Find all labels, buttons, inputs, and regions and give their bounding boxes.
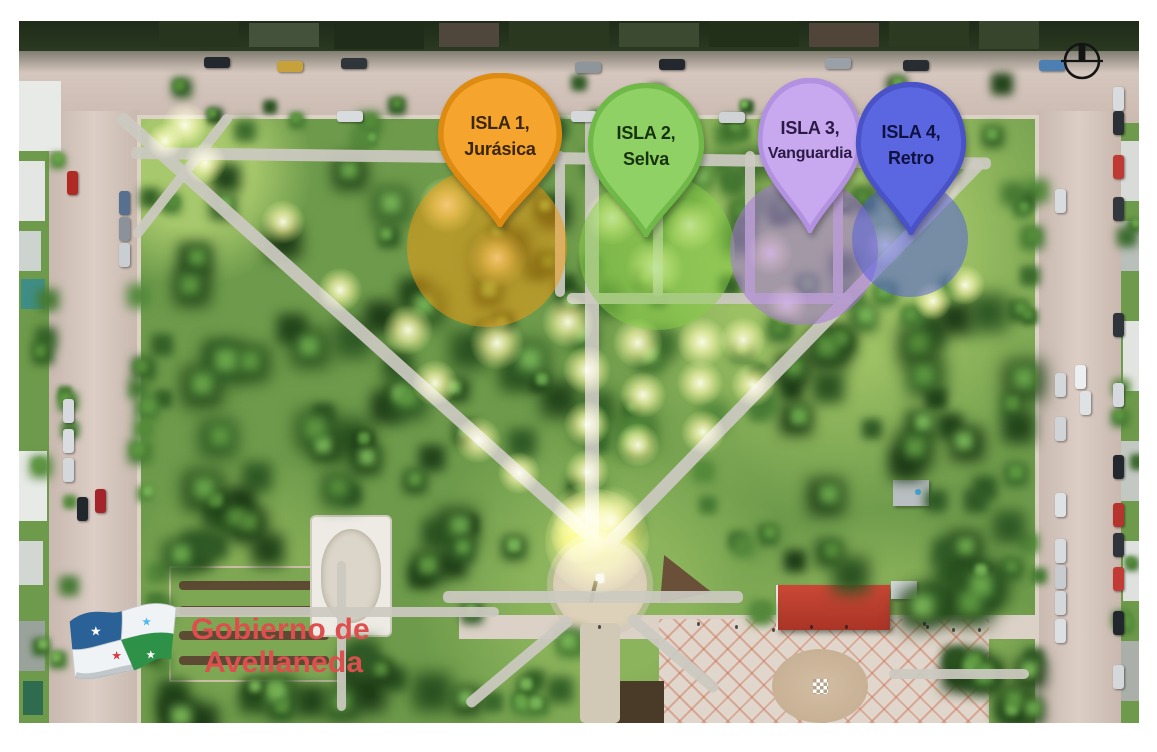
red-roof-building <box>776 585 890 630</box>
pedestrian <box>952 628 955 632</box>
car <box>719 112 745 123</box>
map-pin-isla-3[interactable]: ISLA 3,Vanguardia <box>757 78 863 233</box>
walkway-circle-horizontal <box>443 591 743 603</box>
walkway-south <box>580 623 620 723</box>
building <box>709 21 799 47</box>
logo-text: Gobierno de Avellaneda <box>191 613 370 679</box>
car <box>63 458 74 482</box>
building <box>159 21 239 47</box>
building <box>1123 541 1139 601</box>
service-building <box>893 480 929 506</box>
building <box>619 23 699 47</box>
svg-text:★: ★ <box>146 650 156 662</box>
pedestrian <box>926 625 929 629</box>
pedestrian <box>978 628 981 632</box>
building <box>889 21 969 47</box>
car <box>119 217 130 241</box>
car <box>1113 665 1124 689</box>
car <box>1055 565 1066 589</box>
car <box>1113 313 1124 337</box>
pedestrian <box>772 628 775 632</box>
poster-canvas: ISLA 1,Jurásica ISLA 2,Selva ISLA 3,Vang… <box>0 0 1157 752</box>
building <box>19 231 41 271</box>
building <box>19 541 43 585</box>
car <box>1113 111 1124 135</box>
car <box>341 58 367 69</box>
car <box>1080 391 1091 415</box>
building <box>19 621 45 671</box>
car <box>1055 539 1066 563</box>
car <box>1113 567 1124 591</box>
car <box>1113 197 1124 221</box>
building <box>21 279 45 309</box>
pin-label: ISLA 2,Selva <box>587 120 705 172</box>
car <box>67 171 78 195</box>
government-logo: ★ ★ ★ ★ Gobierno de Avellaneda <box>61 597 370 702</box>
car <box>63 399 74 423</box>
walkway-east <box>889 669 1029 679</box>
pin-label: ISLA 4,Retro <box>855 119 967 171</box>
car <box>1113 155 1124 179</box>
car <box>903 60 929 71</box>
building <box>19 81 61 151</box>
tree-canopy-light <box>19 21 21 23</box>
building <box>979 21 1039 49</box>
pedestrian <box>923 622 926 626</box>
car <box>95 489 106 513</box>
rose-row <box>179 581 329 590</box>
car <box>277 61 303 72</box>
checker-tile <box>813 679 828 694</box>
car <box>77 497 88 521</box>
car <box>1055 619 1066 643</box>
building <box>19 451 47 521</box>
car <box>1055 591 1066 615</box>
pedestrian <box>735 625 738 629</box>
building <box>19 161 45 221</box>
car <box>825 58 851 69</box>
car <box>659 59 685 70</box>
building <box>1123 321 1139 391</box>
car <box>1075 365 1086 389</box>
building <box>249 23 319 47</box>
street-right <box>1037 111 1121 723</box>
aerial-map: ISLA 1,Jurásica ISLA 2,Selva ISLA 3,Vang… <box>19 21 1139 723</box>
car <box>1113 533 1124 557</box>
car <box>119 243 130 267</box>
pool-dot <box>915 489 921 495</box>
building <box>23 681 43 715</box>
building <box>334 21 424 49</box>
building <box>509 21 609 47</box>
map-pin-isla-1[interactable]: ISLA 1,Jurásica <box>437 73 563 227</box>
pin-label: ISLA 1,Jurásica <box>437 110 563 162</box>
north-compass-icon <box>1059 36 1105 82</box>
building <box>439 23 499 47</box>
car <box>63 429 74 453</box>
avellaneda-flag-icon: ★ ★ ★ ★ <box>61 597 183 702</box>
car <box>1113 87 1124 111</box>
car <box>1055 189 1066 213</box>
svg-text:★: ★ <box>90 624 102 639</box>
car <box>1113 383 1124 407</box>
car <box>1113 611 1124 635</box>
car <box>1113 455 1124 479</box>
car <box>337 111 363 122</box>
car <box>1055 417 1066 441</box>
car <box>204 57 230 68</box>
building <box>1121 221 1139 271</box>
small-building <box>891 581 917 599</box>
building <box>809 23 879 47</box>
svg-text:★: ★ <box>141 616 151 628</box>
car <box>1113 503 1124 527</box>
car <box>1055 493 1066 517</box>
map-pin-isla-2[interactable]: ISLA 2,Selva <box>587 83 705 237</box>
map-pin-isla-4[interactable]: ISLA 4,Retro <box>855 82 967 235</box>
car <box>119 191 130 215</box>
svg-text:★: ★ <box>111 649 122 663</box>
pin-label: ISLA 3,Vanguardia <box>757 115 863 167</box>
car <box>1055 373 1066 397</box>
car <box>575 62 601 73</box>
